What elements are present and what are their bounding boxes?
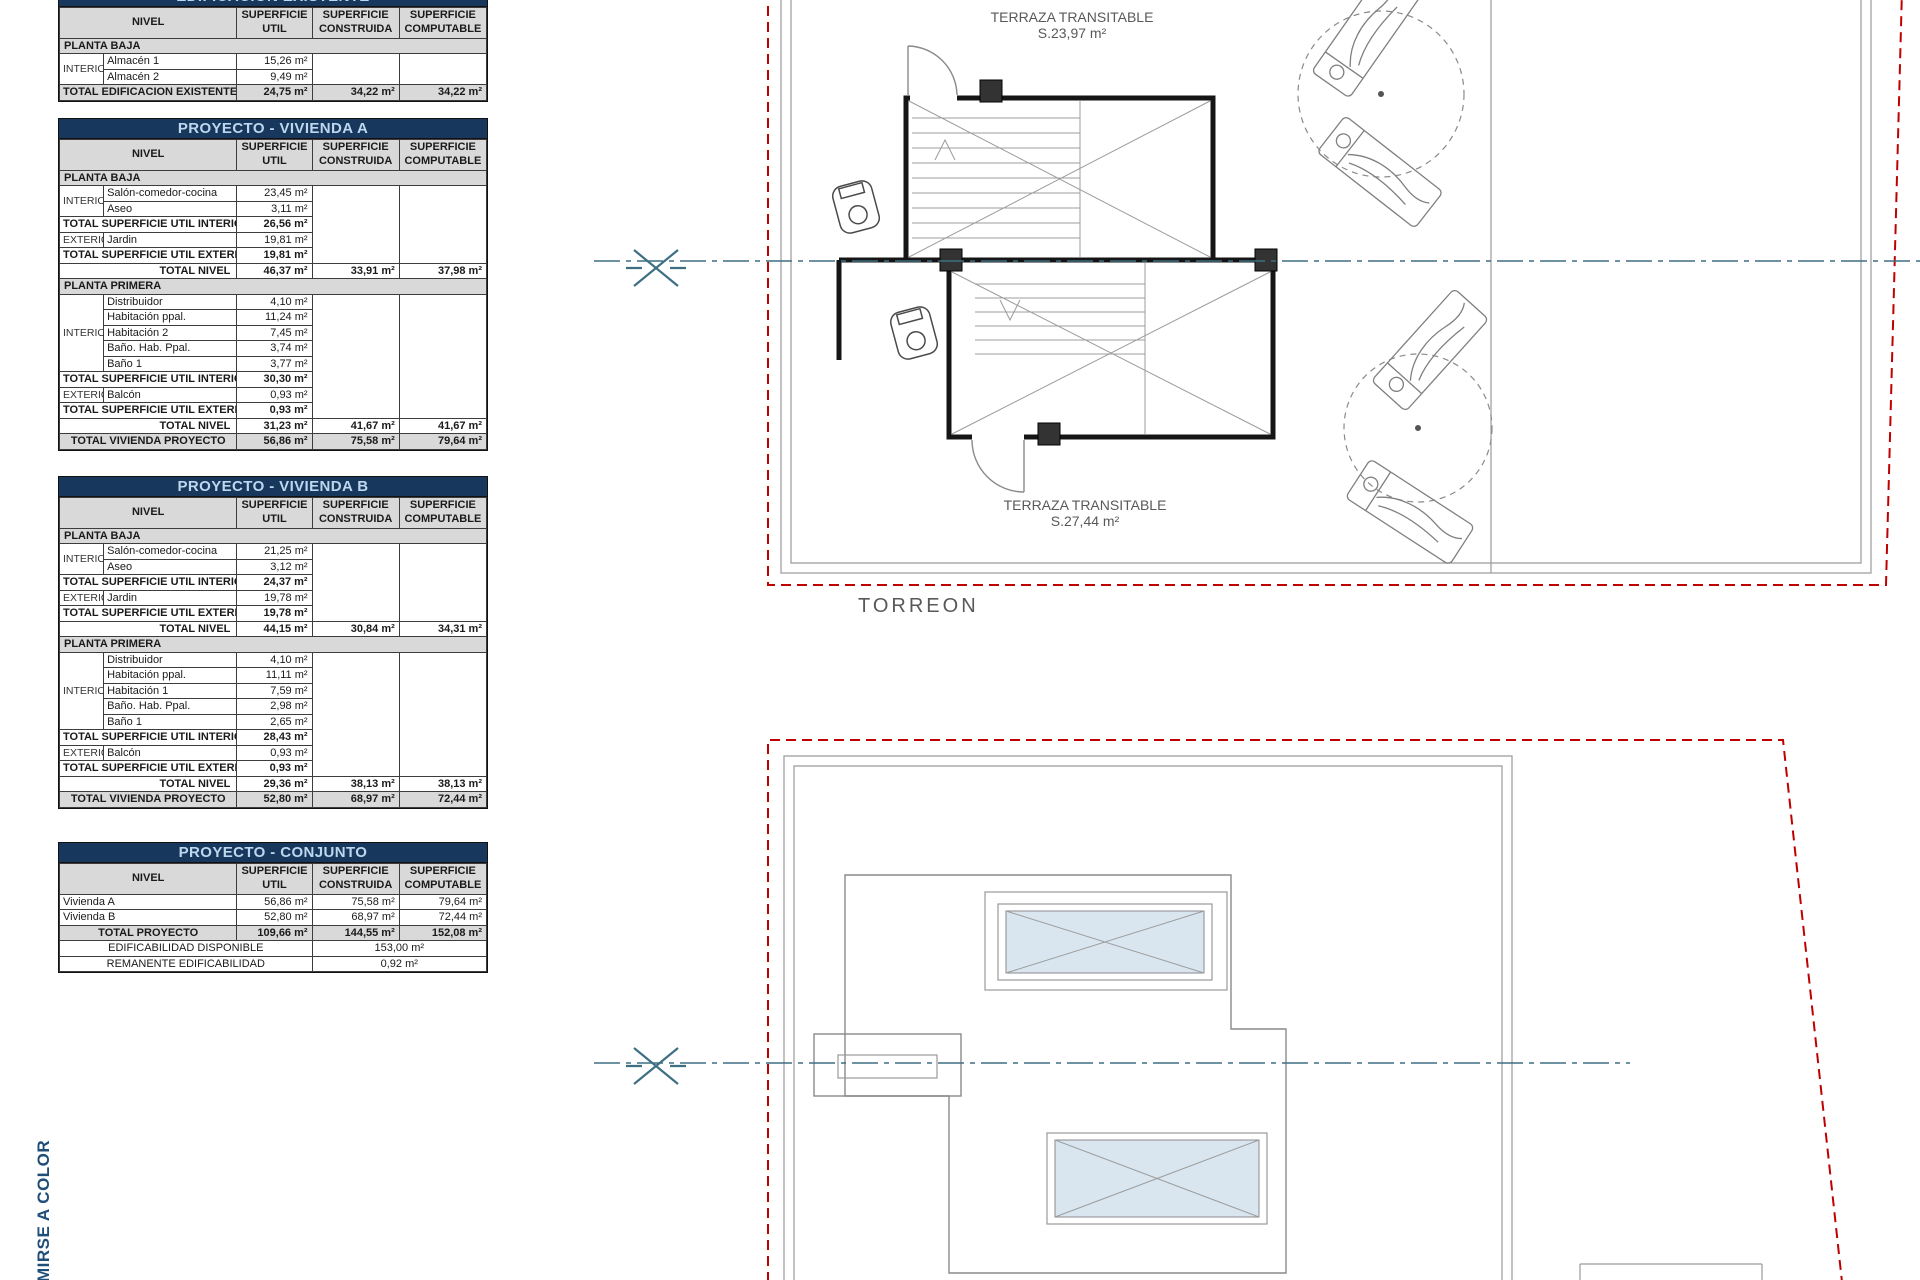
sun-lounger-icon	[1345, 459, 1474, 565]
table-row: INTERIORSalón-comedor-cocina21,25 m²	[60, 544, 487, 560]
wc-fixture-icon	[888, 305, 939, 362]
table-row: Vivienda B52,80 m²68,97 m²72,44 m²	[60, 910, 487, 926]
terrace-label: TERRAZA TRANSITABLE	[1004, 497, 1167, 513]
table-row: TOTAL NIVEL46,37 m²33,91 m²37,98 m²	[60, 263, 487, 279]
table-row: PLANTA BAJA	[60, 528, 487, 544]
table-title: EDIFICACION EXISTENTE	[59, 0, 487, 7]
table-row: Aseo3,12 m²	[60, 559, 487, 575]
table-row: PLANTA PRIMERA	[60, 279, 487, 295]
table-row: Baño. Hab. Ppal.2,98 m²	[60, 699, 487, 715]
table-row: TOTAL VIVIENDA PROYECTO56,86 m²75,58 m²7…	[60, 434, 487, 450]
table-row: TOTAL SUPERFICIE UTIL INTERIOR30,30 m²	[60, 372, 487, 388]
skylight-icon	[1047, 1133, 1267, 1224]
table-row: Habitación 27,45 m²	[60, 325, 487, 341]
pillar-icon	[1038, 423, 1060, 445]
area-table-vivienda-a: PROYECTO - VIVIENDA A NIVELSUPERFICIEUTI…	[58, 118, 488, 451]
table-row: Aseo3,11 m²	[60, 201, 487, 217]
table-row: PLANTA PRIMERA	[60, 637, 487, 653]
table-row: INTERIORDistribuidor4,10 m²	[60, 294, 487, 310]
table-row: Habitación ppal.11,24 m²	[60, 310, 487, 326]
table-row: TOTAL SUPERFICIE UTIL EXTERIOR19,78 m²	[60, 606, 487, 622]
table-title: PROYECTO - VIVIENDA A	[59, 119, 487, 139]
table-row: TOTAL SUPERFICIE UTIL EXTERIOR19,81 m²	[60, 248, 487, 264]
table-header-row: NIVELSUPERFICIEUTILSUPERFICIECONSTRUIDAS…	[60, 140, 487, 171]
table-header-row: NIVELSUPERFICIEUTILSUPERFICIECONSTRUIDAS…	[60, 498, 487, 529]
table-row: PLANTA BAJA	[60, 170, 487, 186]
table-row: TOTAL EDIFICACION EXISTENTE24,75 m²34,22…	[60, 85, 487, 101]
table-row: EXTERIORJardin19,78 m²	[60, 590, 487, 606]
table-row: TOTAL SUPERFICIE UTIL EXTERIOR0,93 m²	[60, 403, 487, 419]
section-marker-icon	[626, 1048, 686, 1084]
floor-plan-drawing: TERRAZA TRANSITABLE S.23,97 m² TERRAZA T…	[480, 0, 1920, 1280]
door-swing-icon	[972, 440, 1024, 492]
area-table-vivienda-b: PROYECTO - VIVIENDA B NIVELSUPERFICIEUTI…	[58, 476, 488, 809]
area-table: NIVELSUPERFICIEUTILSUPERFICIECONSTRUIDAS…	[59, 139, 487, 450]
table-row: TOTAL SUPERFICIE UTIL INTERIOR28,43 m²	[60, 730, 487, 746]
sun-lounger-icon	[1312, 0, 1421, 98]
table-row: TOTAL NIVEL44,15 m²30,84 m²34,31 m²	[60, 621, 487, 637]
stairs-icon	[912, 101, 1080, 257]
table-row: Habitación 17,59 m²	[60, 683, 487, 699]
table-row: Habitación ppal.11,11 m²	[60, 668, 487, 684]
top-plan-torreon: TERRAZA TRANSITABLE S.23,97 m² TERRAZA T…	[594, 0, 1920, 617]
table-header-row: NIVELSUPERFICIEUTILSUPERFICIECONSTRUIDAS…	[60, 8, 487, 39]
section-marker-icon	[626, 250, 686, 286]
stairwell-upper	[906, 46, 1213, 260]
table-row: EXTERIORBalcón0,93 m²	[60, 387, 487, 403]
table-row: EXTERIORJardin19,81 m²	[60, 232, 487, 248]
area-table-existente: EDIFICACION EXISTENTE NIVELSUPERFICIEUTI…	[58, 0, 488, 102]
table-header-row: NIVELSUPERFICIEUTILSUPERFICIECONSTRUIDAS…	[60, 864, 487, 895]
stairwell-lower	[949, 260, 1273, 492]
pillar-icon	[1255, 249, 1277, 271]
bottom-plan-roof	[594, 740, 1842, 1280]
table-row: REMANENTE EDIFICABILIDAD0,92 m²	[60, 956, 487, 972]
table-row: TOTAL SUPERFICIE UTIL INTERIOR24,37 m²	[60, 575, 487, 591]
sun-lounger-icon	[1371, 289, 1488, 412]
roof-box	[814, 1034, 961, 1096]
terrace-area-value: S.27,44 m²	[1051, 513, 1120, 529]
table-row: Baño 12,65 m²	[60, 714, 487, 730]
area-table: NIVELSUPERFICIEUTILSUPERFICIECONSTRUIDAS…	[59, 497, 487, 808]
table-row: Vivienda A56,86 m²75,58 m²79,64 m²	[60, 894, 487, 910]
color-print-note: MIRSE A COLOR	[34, 1140, 54, 1280]
wc-fixture-icon	[830, 179, 881, 236]
table-row: TOTAL VIVIENDA PROYECTO52,80 m²68,97 m²7…	[60, 792, 487, 808]
table-row: TOTAL NIVEL31,23 m²41,67 m²41,67 m²	[60, 418, 487, 434]
table-row: EDIFICABILIDAD DISPONIBLE153,00 m²	[60, 941, 487, 957]
plot-boundary-icon	[768, 740, 1842, 1280]
table-title: PROYECTO - CONJUNTO	[59, 843, 487, 863]
table-row: INTERIORSalón-comedor-cocina23,45 m²	[60, 186, 487, 202]
area-table: NIVELSUPERFICIEUTILSUPERFICIECONSTRUIDAS…	[59, 7, 487, 101]
sun-lounger-icon	[1317, 116, 1443, 229]
table-row: Almacén 29,49 m²	[60, 69, 487, 85]
table-row: TOTAL SUPERFICIE UTIL EXTERIOR0,93 m²	[60, 761, 487, 777]
area-table-conjunto: PROYECTO - CONJUNTO NIVELSUPERFICIEUTILS…	[58, 842, 488, 973]
table-row: INTERIORDistribuidor4,10 m²	[60, 652, 487, 668]
table-row: Baño 13,77 m²	[60, 356, 487, 372]
table-row: PLANTA BAJA	[60, 38, 487, 54]
plan-caption: TORREON	[858, 595, 979, 617]
skylight-icon	[998, 904, 1212, 980]
table-row: TOTAL NIVEL29,36 m²38,13 m²38,13 m²	[60, 776, 487, 792]
door-swing-icon	[908, 46, 957, 96]
pillar-icon	[940, 249, 962, 271]
area-table: NIVELSUPERFICIEUTILSUPERFICIECONSTRUIDAS…	[59, 863, 487, 972]
terrace-area-value: S.23,97 m²	[1038, 25, 1107, 41]
table-row: TOTAL SUPERFICIE UTIL INTERIOR26,56 m²	[60, 217, 487, 233]
pillar-icon	[980, 80, 1002, 102]
table-row: Baño. Hab. Ppal.3,74 m²	[60, 341, 487, 357]
table-row: TOTAL PROYECTO109,66 m²144,55 m²152,08 m…	[60, 925, 487, 941]
table-row: EXTERIORBalcón0,93 m²	[60, 745, 487, 761]
table-title: PROYECTO - VIVIENDA B	[59, 477, 487, 497]
plan-sheet: EDIFICACION EXISTENTE NIVELSUPERFICIEUTI…	[0, 0, 1920, 1280]
terrace-label: TERRAZA TRANSITABLE	[991, 9, 1154, 25]
table-row: INTERIORAlmacén 115,26 m²	[60, 54, 487, 70]
